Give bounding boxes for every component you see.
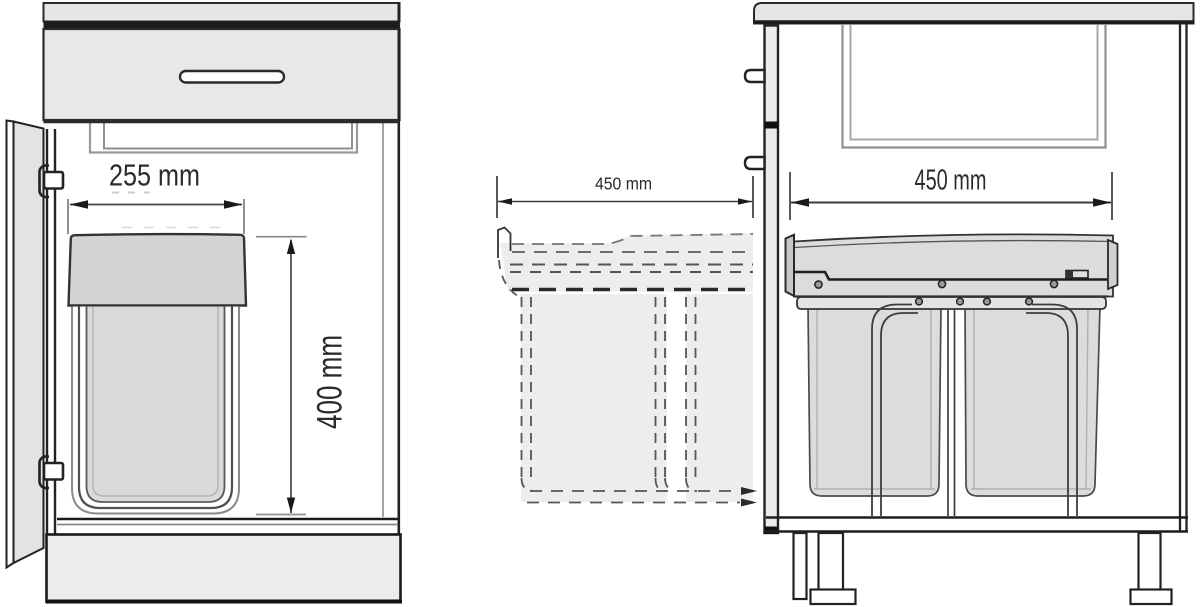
svg-text:255 mm: 255 mm [109, 158, 200, 193]
svg-text:450 mm: 450 mm [915, 165, 987, 197]
svg-text:450 mm: 450 mm [595, 174, 652, 194]
svg-text:400 mm: 400 mm [311, 335, 350, 429]
